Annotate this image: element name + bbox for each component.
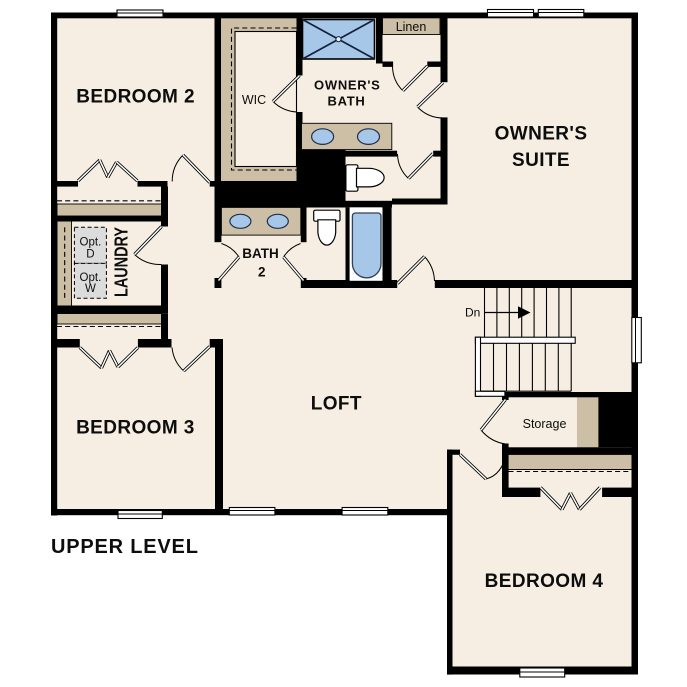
svg-text:Opt.: Opt.: [80, 272, 102, 284]
svg-text:W: W: [85, 283, 96, 295]
svg-text:2: 2: [258, 265, 266, 280]
svg-text:WIC: WIC: [242, 93, 266, 107]
svg-text:Storage: Storage: [523, 417, 567, 431]
svg-text:LOFT: LOFT: [311, 394, 362, 415]
svg-text:UPPER LEVEL: UPPER LEVEL: [51, 536, 199, 558]
svg-text:LAUNDRY: LAUNDRY: [112, 227, 132, 297]
svg-text:D: D: [86, 249, 94, 261]
svg-text:SUITE: SUITE: [512, 150, 570, 171]
svg-text:BATH: BATH: [242, 246, 279, 261]
svg-text:OWNER'S: OWNER'S: [314, 77, 381, 92]
svg-text:Dn: Dn: [465, 306, 480, 320]
svg-text:Opt.: Opt.: [80, 236, 102, 248]
svg-text:BEDROOM 2: BEDROOM 2: [76, 86, 195, 107]
svg-text:Linen: Linen: [396, 20, 427, 34]
svg-text:BATH: BATH: [328, 93, 366, 108]
svg-text:BEDROOM 3: BEDROOM 3: [76, 418, 195, 439]
svg-text:OWNER'S: OWNER'S: [495, 124, 588, 145]
svg-text:BEDROOM 4: BEDROOM 4: [485, 571, 604, 592]
